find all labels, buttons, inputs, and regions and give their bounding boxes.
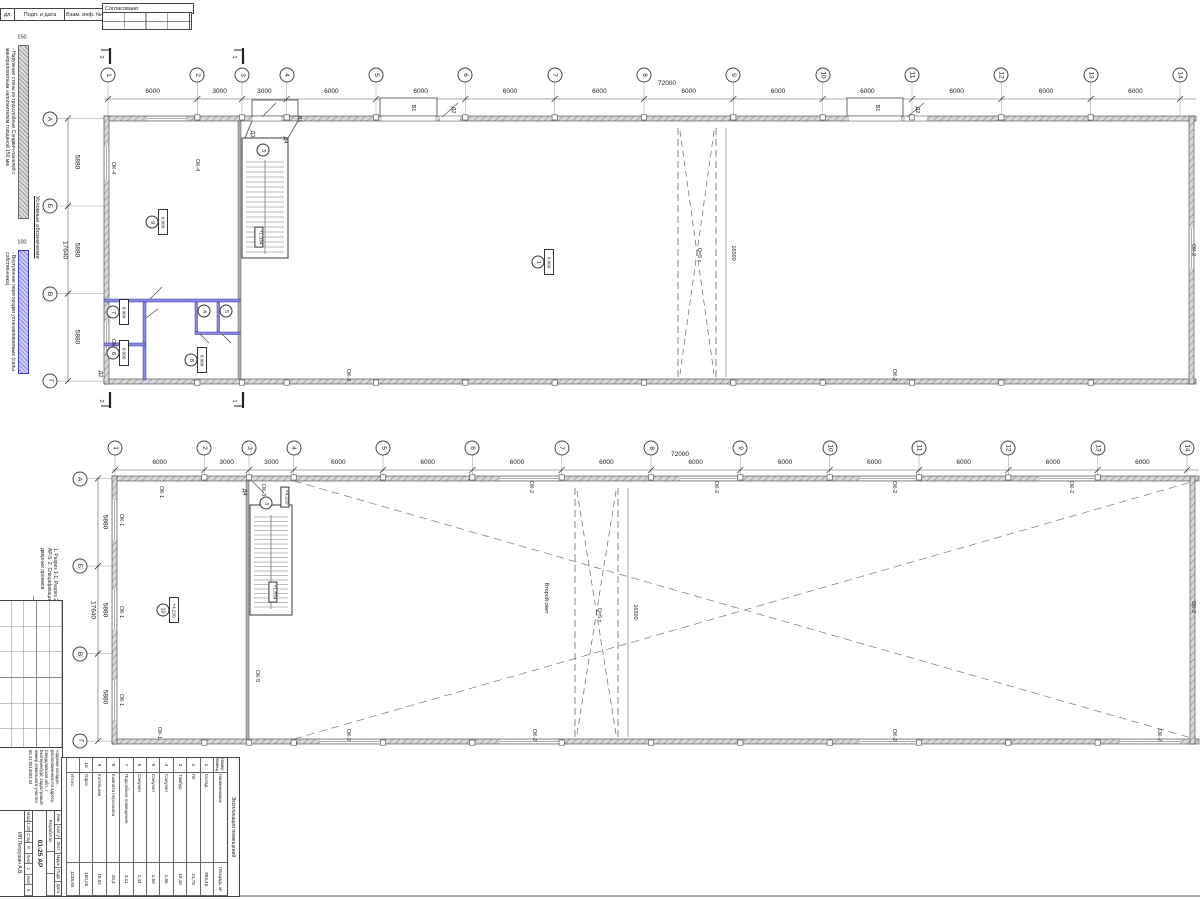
axis-bubble-label: 2: [201, 446, 208, 450]
scale-label: Масшт.: [25, 811, 32, 822]
role-label: Разработал: [47, 811, 54, 852]
column-marker: [246, 740, 251, 745]
column-marker: [463, 380, 468, 385]
row-axis-bubble: В: [43, 286, 58, 301]
column-marker: [916, 740, 921, 745]
dim-label: 3000: [212, 89, 226, 96]
plan-annotation: Д2: [96, 371, 102, 378]
scale-value: 1:200: [25, 822, 32, 833]
schedule-cell: 1,44: [134, 863, 146, 896]
schedule-row: 5Санузел1,69: [146, 758, 159, 896]
room-marker: 6: [107, 347, 120, 360]
column-marker: [552, 380, 557, 385]
elevation-value: 0.000: [161, 216, 166, 228]
column-marker: [559, 740, 564, 745]
row-axis-bubble: Г: [43, 374, 58, 389]
legend-title: Условные обозначения: [34, 196, 40, 259]
stamp-cell-podp-data: Подп. и дата: [14, 8, 66, 21]
column-marker: [916, 475, 921, 480]
schedule-cell: Номер помещ.: [214, 758, 227, 773]
schedule-cell: 18,92: [93, 863, 105, 896]
legend-dim-150: 150: [17, 35, 26, 41]
axis-bubble: 8: [637, 68, 652, 83]
elevation-box: 0.000: [158, 209, 168, 235]
axis-bubble-label: 6: [462, 73, 469, 77]
room-number: 5: [223, 309, 229, 312]
axis-bubble-label: 5: [380, 446, 387, 450]
room-number: 9: [149, 220, 155, 223]
axis-bubble-label: 1: [112, 446, 119, 450]
room-marker: 3: [257, 144, 270, 157]
plan-annotation: ОК-2: [1189, 244, 1195, 256]
dim-label: 6000: [688, 460, 702, 467]
schedule-row: 7Подсобное помещение3,11: [119, 758, 132, 896]
dim-label: 6000: [771, 89, 785, 96]
elevation-value: 0.000: [200, 354, 205, 366]
schedule-cell: ЛК: [187, 773, 199, 863]
schedule-cell: Комната персонала: [107, 773, 119, 863]
stage-value: Р: [25, 843, 32, 854]
column-marker: [552, 115, 557, 120]
column-marker: [202, 740, 207, 745]
axis-bubble-label: 8: [641, 73, 648, 77]
column-marker: [820, 380, 825, 385]
plan-annotation: ОК-2: [1067, 481, 1073, 493]
column-marker: [1095, 475, 1100, 480]
axis-bubble-label: 11: [916, 445, 923, 452]
sheet-value: 1: [25, 864, 32, 875]
elevation-box: 0.000: [119, 340, 129, 366]
plan-annotation: Д4: [240, 489, 246, 496]
dim-label: 6000: [681, 89, 695, 96]
schedule-cell: Подсобное помещение: [120, 773, 132, 863]
schedule-cell: 3: [174, 758, 186, 773]
plan-annotation: ОК-1: [117, 606, 123, 618]
schedule-cell: 1,69: [147, 863, 159, 896]
axis-bubble-label: 5: [373, 73, 380, 77]
elevation-box: 0.000: [197, 347, 207, 373]
plan-annotation: ОК-2: [1189, 601, 1195, 613]
axis-bubble: 2: [190, 68, 205, 83]
legend-desc-exterior: - Наружные стены из трехслойных Сэндвич-…: [4, 48, 17, 216]
column-marker: [827, 475, 832, 480]
axis-bubble: 3: [242, 441, 257, 456]
room-marker: 5: [220, 305, 233, 318]
schedule-cell: 18,16: [174, 863, 186, 896]
sheets-value: 6: [25, 885, 32, 896]
dim-label: 6000: [331, 460, 345, 467]
axis-bubble: 1: [108, 441, 123, 456]
schedule-row: Номер помещ.НаименованиеПлощадь, м²: [213, 758, 227, 896]
plan-annotation: ОК-2: [712, 481, 718, 493]
column-marker: [470, 475, 475, 480]
legend-sample-exterior-wall: [18, 45, 29, 219]
room-marker: 10: [157, 604, 170, 617]
room-number: 3: [263, 501, 269, 504]
plan-annotation: ОК-2: [530, 729, 536, 741]
column-marker: [1088, 115, 1093, 120]
plan-annotation: В1: [873, 105, 879, 112]
dim-label: 6000: [599, 460, 613, 467]
plan-annotation: ОК-2: [890, 729, 896, 741]
axis-bubble: 8: [644, 441, 659, 456]
title-block-role-row: Разработал: [46, 811, 54, 896]
schedule-row: 9Котельная18,92: [92, 758, 105, 896]
column-marker: [999, 380, 1004, 385]
column-marker: [195, 115, 200, 120]
title-block-stage-row: Масшт. 1:200 Стадия Р Лист 1 Листов 6: [24, 811, 32, 896]
dim-label: 3000: [219, 460, 233, 467]
elevation-value: 0.000: [547, 256, 552, 268]
sheets-label: Листов: [25, 875, 32, 886]
dim-label: 6000: [324, 89, 338, 96]
elevation-value: 0.000: [122, 306, 127, 318]
schedule-cell: 9: [93, 758, 105, 773]
column-marker: [373, 380, 378, 385]
elevation-box: +4.220: [169, 597, 179, 623]
room-number: 6: [110, 351, 116, 354]
schedule-cell: 1238,85: [67, 863, 79, 896]
room-schedule: Экспликация помещенийНомер помещ.Наимено…: [61, 757, 240, 897]
plan-annotation: 1: [230, 399, 236, 402]
schedule-row: 2ЛК21,76: [186, 758, 199, 896]
column-marker: [246, 475, 251, 480]
axis-bubble: 14: [1173, 68, 1188, 83]
stage-label: Стадия: [25, 832, 32, 843]
elevation-value: +4.220: [172, 603, 177, 617]
axis-bubble: 11: [912, 441, 927, 456]
dim-label: 6000: [1135, 460, 1149, 467]
developer-name: ИП Петрушин А.В.: [16, 811, 24, 896]
room-marker: 8: [185, 354, 198, 367]
schedule-row: 6Санузел1,44: [133, 758, 146, 896]
plan-annotation: +4.220: [281, 487, 290, 508]
stamp-approved-grid: [102, 12, 192, 30]
axis-bubble-label: 3: [239, 73, 246, 77]
room-marker: 9: [146, 216, 159, 229]
schedule-cell: [67, 758, 79, 773]
column-marker: [648, 475, 653, 480]
dim-label: 6000: [867, 460, 881, 467]
axis-bubble: 11: [905, 68, 920, 83]
axis-bubble: 6: [458, 68, 473, 83]
plan-annotation: ОК-2: [527, 481, 533, 493]
axis-bubble: 12: [1001, 441, 1016, 456]
plan-annotation: Q=5 т: [695, 248, 701, 263]
row-axis-bubble: А: [73, 471, 88, 486]
plan-annotation: ОК-1: [157, 486, 163, 498]
dim-label: 5880: [73, 330, 80, 344]
plan-annotation: ОК-2: [344, 369, 350, 381]
axis-bubble: 4: [279, 68, 294, 83]
column-marker: [1006, 740, 1011, 745]
schedule-cell: 160,26: [80, 863, 92, 896]
axis-bubble-label: 12: [1005, 444, 1012, 451]
axis-bubble-label: 13: [1094, 444, 1101, 451]
schedule-cell: 6: [134, 758, 146, 773]
axis-bubble-label: 10: [826, 444, 833, 451]
schedule-row: 10Офис160,26: [79, 758, 92, 896]
dim-label: 5880: [73, 243, 80, 257]
schedule-cell: 7: [120, 758, 132, 773]
axis-bubble-label: 4: [290, 446, 297, 450]
column-marker: [820, 115, 825, 120]
column-marker: [470, 740, 475, 745]
room-marker: 7: [107, 306, 120, 319]
axis-bubble-label: 9: [737, 446, 744, 450]
dim-label: 6000: [956, 460, 970, 467]
column-marker: [284, 380, 289, 385]
schedule-row: 4Санузел1,66: [159, 758, 172, 896]
axis-bubble-label: 9: [730, 73, 737, 77]
dim-label: 5880: [101, 690, 108, 704]
dim-label: 6000: [145, 89, 159, 96]
schedule-cell: 4: [160, 758, 172, 773]
row-axis-bubble-label: Б: [76, 564, 83, 568]
plan-annotation: +1.834: [269, 582, 278, 603]
dim-label: 6000: [949, 89, 963, 96]
dim-label: 5880: [101, 515, 108, 529]
column-marker: [909, 380, 914, 385]
schedule-cell: Склад: [201, 773, 213, 863]
schedule-row: 3Тамбур18,16: [173, 758, 186, 896]
axis-bubble-label: 8: [648, 446, 655, 450]
plan-annotation: 16500: [631, 604, 637, 619]
plan-annotation: ОК-1: [117, 514, 123, 526]
plan-annotation: +1.034: [255, 227, 264, 248]
plan-annotation: 1: [230, 55, 236, 58]
dim-label: 6000: [152, 460, 166, 467]
column-marker: [999, 115, 1004, 120]
axis-bubble: 7: [554, 441, 569, 456]
dim-label: 3000: [257, 89, 271, 96]
axis-bubble-label: 14: [1176, 71, 1183, 78]
axis-bubble-label: 7: [551, 73, 558, 77]
row-axis-bubble-label: В: [47, 291, 54, 295]
row-axis-bubble: В: [73, 646, 88, 661]
room-number: 7: [110, 310, 116, 313]
schedule-cell: 3,11: [120, 863, 132, 896]
elevation-box: 0.000: [119, 299, 129, 325]
schedule-cell: 28,4: [107, 863, 119, 896]
column-marker: [738, 740, 743, 745]
plan-annotation: Второй свет: [542, 583, 548, 614]
column-marker: [1088, 380, 1093, 385]
axis-bubble: 13: [1083, 68, 1098, 83]
plan-annotation: ОК-4: [193, 159, 199, 171]
axis-bubble: 1: [101, 68, 116, 83]
row-axis-bubble: Г: [73, 734, 88, 749]
schedule-cell: 10: [80, 758, 92, 773]
axis-bubble-label: 11: [909, 72, 916, 79]
dim-label: 6000: [503, 89, 517, 96]
overall-dim-label: 17640: [89, 601, 96, 619]
column-marker: [738, 475, 743, 480]
column-marker: [291, 475, 296, 480]
plan-annotation: В1: [409, 105, 415, 112]
axis-bubble-label: 2: [194, 73, 201, 77]
column-marker: [1006, 475, 1011, 480]
schedule-cell: Санузел: [147, 773, 159, 863]
dim-label: 5880: [101, 603, 108, 617]
column-marker: [380, 740, 385, 745]
room-number: 8: [188, 358, 194, 361]
axis-bubble: 5: [376, 441, 391, 456]
schedule-cell: Офис: [80, 773, 92, 863]
plan-annotation: Д3: [248, 131, 254, 138]
row-axis-bubble: Б: [43, 199, 58, 214]
document-number: 01-25 АР: [32, 811, 46, 896]
axis-bubble-label: 3: [246, 446, 253, 450]
project-description: «Здание склада», расположенное по адресу…: [0, 748, 62, 811]
column-marker: [559, 475, 564, 480]
plan-annotation: Д4: [281, 137, 287, 144]
axis-bubble: 2: [197, 441, 212, 456]
legend-sample-partition: [18, 250, 29, 374]
room-marker: 1: [532, 256, 545, 269]
elevation-value: 0.000: [122, 347, 127, 359]
schedule-cell: 8: [107, 758, 119, 773]
row-axis-bubble-label: Г: [47, 379, 54, 383]
dim-label: 6000: [420, 460, 434, 467]
column-marker: [827, 740, 832, 745]
schedule-cell: Тамбур: [174, 773, 186, 863]
column-marker: [731, 380, 736, 385]
plan-annotation: Q=5 т: [595, 608, 601, 623]
row-axis-bubble-label: В: [77, 651, 84, 655]
plan-annotation: ОК-3: [259, 484, 265, 496]
plan-annotation: ОК-5: [253, 670, 259, 682]
row-axis-bubble: Б: [73, 559, 88, 574]
role-sign: [47, 852, 54, 874]
dim-label: 6000: [413, 89, 427, 96]
column-marker: [731, 115, 736, 120]
plan-annotation: ОК-2: [890, 481, 896, 493]
legend-dim-100: 100: [17, 240, 26, 246]
elevation-box: 0.000: [544, 249, 554, 275]
dim-label: 5880: [73, 155, 80, 169]
room-number: 10: [160, 607, 166, 613]
schedule-title: Экспликация помещений: [227, 758, 239, 896]
overall-dim-label: 72000: [671, 452, 689, 459]
axis-bubble: 9: [726, 68, 741, 83]
column-marker: [239, 115, 244, 120]
axis-bubble: 5: [369, 68, 384, 83]
role-date: [47, 874, 54, 896]
schedule-row: Итого1238,85: [66, 758, 79, 896]
stamp-cell-vzam: Взам. инф. №: [64, 8, 104, 21]
axis-bubble-label: 7: [558, 446, 565, 450]
room-number: 4: [201, 309, 207, 312]
drawing-sheet: { "stamp_top": { "col1": "дл.", "col2": …: [0, 0, 1200, 900]
plan-annotation: ОК-2: [890, 369, 896, 381]
schedule-cell: Санузел: [160, 773, 172, 863]
column-marker: [373, 115, 378, 120]
row-axis-bubble-label: Г: [77, 739, 84, 743]
overall-dim-label: 17640: [61, 241, 68, 259]
row-axis-bubble-label: А: [77, 476, 84, 480]
dim-label: 6000: [860, 89, 874, 96]
axis-bubble: 4: [286, 441, 301, 456]
plan-annotation: ОК-2: [1155, 729, 1161, 741]
axis-bubble: 7: [547, 68, 562, 83]
legend-desc-partition: - Внутренние перегородки устанавливаемые…: [4, 252, 17, 382]
axis-bubble-label: 10: [819, 71, 826, 78]
plan-annotation: ОК-2: [344, 729, 350, 741]
schedule-cell: 1,66: [160, 863, 172, 896]
room-number: 3: [260, 148, 266, 151]
plan-annotation: ОК-1: [117, 694, 123, 706]
dim-label: 6000: [1128, 89, 1142, 96]
schedule-cell: 2: [187, 758, 199, 773]
plan-annotation: Д2: [449, 107, 455, 114]
sheet-label: Лист: [25, 854, 32, 865]
axis-bubble: 10: [815, 68, 830, 83]
column-marker: [239, 380, 244, 385]
dim-label: 3000: [264, 460, 278, 467]
column-marker: [909, 115, 914, 120]
row-axis-bubble: А: [43, 111, 58, 126]
schedule-cell: Наименование: [214, 773, 227, 863]
plan-annotation: 2: [97, 55, 103, 58]
dim-label: 6000: [778, 460, 792, 467]
axis-bubble: 3: [235, 68, 250, 83]
axis-bubble-label: 13: [1087, 71, 1094, 78]
dim-label: 6000: [1039, 89, 1053, 96]
plan-annotation: Д1: [295, 116, 301, 123]
room-marker: 3: [260, 497, 273, 510]
column-marker: [1095, 740, 1100, 745]
column-marker: [648, 740, 653, 745]
revision-table: [0, 601, 62, 748]
title-block-main: Изм Кол.уч Лист №док Подп Дата Разработа…: [0, 811, 62, 896]
dim-label: 6000: [1046, 460, 1060, 467]
axis-bubble-label: 14: [1183, 444, 1190, 451]
schedule-cell: 5: [147, 758, 159, 773]
room-marker: 4: [198, 305, 211, 318]
axis-bubble: 14: [1180, 441, 1195, 456]
axis-bubble-label: 12: [998, 71, 1005, 78]
schedule-cell: Итого: [67, 773, 79, 863]
schedule-cell: Санузел: [134, 773, 146, 863]
column-marker: [202, 475, 207, 480]
dim-label: 6000: [592, 89, 606, 96]
column-marker: [291, 740, 296, 745]
plan-annotation: 16500: [729, 245, 735, 260]
column-marker: [284, 115, 289, 120]
axis-bubble-label: 1: [105, 73, 112, 77]
plan-annotation: 2: [97, 399, 103, 402]
axis-bubble: 12: [994, 68, 1009, 83]
overall-dim-label: 72000: [658, 81, 676, 88]
schedule-cell: 21,76: [187, 863, 199, 896]
schedule-cell: 1: [201, 758, 213, 773]
axis-bubble: 9: [733, 441, 748, 456]
axis-bubble: 6: [465, 441, 480, 456]
axis-bubble: 10: [822, 441, 837, 456]
schedule-row: 8Комната персонала28,4: [106, 758, 119, 896]
column-marker: [641, 380, 646, 385]
row-axis-bubble-label: Б: [46, 204, 53, 208]
plan-annotation: ОК-1: [155, 727, 161, 739]
column-marker: [380, 475, 385, 480]
schedule-cell: 983,45: [201, 863, 213, 896]
plan-annotation: ОК-4: [109, 162, 115, 174]
title-block: «Здание склада», расположенное по адресу…: [0, 600, 63, 897]
room-number: 1: [535, 260, 541, 263]
schedule-cell: Площадь, м²: [214, 863, 227, 896]
dim-label: 6000: [510, 460, 524, 467]
